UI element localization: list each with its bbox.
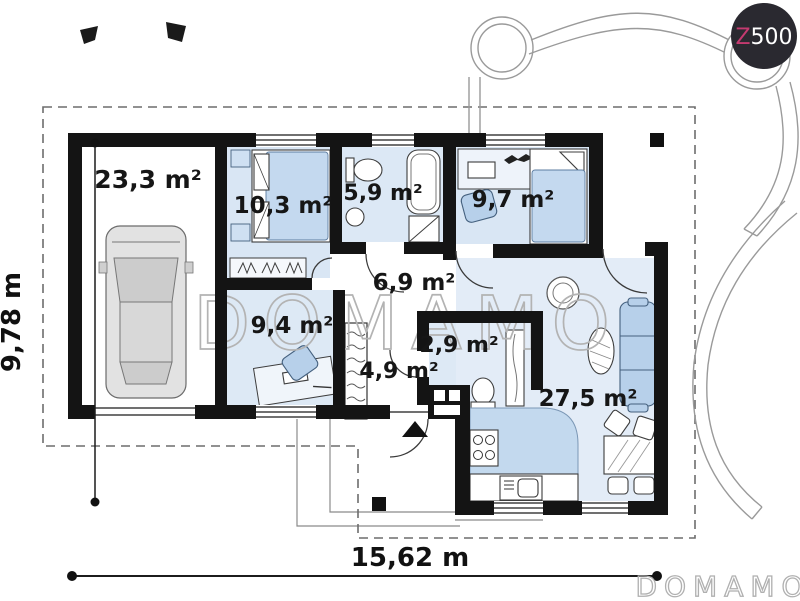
garage-door: [95, 405, 195, 419]
laptop-icon: [468, 162, 495, 178]
room-label-bathroom: 5,9 m²: [343, 181, 422, 206]
stove-icon: [470, 430, 498, 466]
room-label-bedroom-1: 10,3 m²: [234, 193, 333, 219]
site-mark: [166, 22, 186, 42]
floor-plan-image: DOMAMO: [0, 0, 800, 601]
nightstand-icon: [231, 224, 250, 241]
corner-column: [650, 133, 664, 147]
nightstand-icon: [231, 150, 250, 167]
room-label-bedroom-3: 9,4 m²: [251, 313, 334, 339]
room-label-hall: 6,9 m²: [373, 270, 456, 296]
room-label-corridor: 4,9 m²: [359, 359, 438, 384]
width-dimension-label: 15,62 m: [351, 543, 469, 573]
garage-furniture: [99, 226, 193, 398]
room-label-bedroom-2: 9,7 m²: [472, 187, 555, 213]
terrace-door-opening: [603, 242, 645, 256]
room-label-wc: 2,9 m²: [419, 333, 498, 358]
entry-arrow-icon: [402, 421, 428, 437]
porch-column: [372, 497, 386, 511]
z500-logo: Z500: [731, 3, 797, 69]
room-label-living: 27,5 m²: [539, 386, 638, 412]
toilet-icon: [472, 378, 494, 404]
chair-icon: [634, 477, 654, 494]
toilet-icon: [354, 159, 382, 181]
z500-logo-text: Z500: [735, 25, 792, 50]
site-mark: [80, 26, 98, 44]
room-label-garage: 23,3 m²: [94, 165, 201, 194]
watermark-corner: DOMAMO: [635, 570, 800, 601]
chair-icon: [608, 477, 628, 494]
sink-icon: [346, 208, 364, 226]
wardrobe-icon: [230, 258, 306, 278]
height-dimension-label: 9,78 m: [0, 272, 27, 372]
